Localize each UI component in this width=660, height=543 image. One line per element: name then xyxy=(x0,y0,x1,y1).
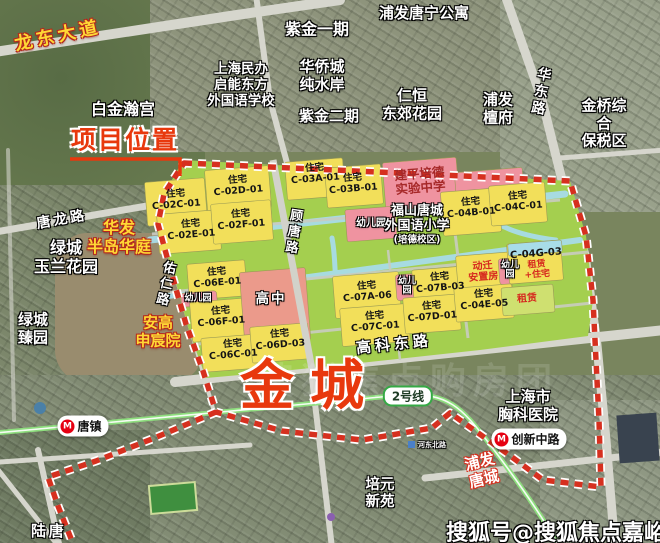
project-location-label: 项目位置 xyxy=(71,125,179,155)
jianping-school-label: 建平培德 实验中学 xyxy=(394,165,446,197)
relocation-label: 动迁 安置房 xyxy=(467,260,499,285)
parcel-label-c06e: 住宅 C-06E-01 xyxy=(192,266,242,291)
angao-shenchen-label: 安高 申宸院 xyxy=(135,314,180,349)
parcel-label-c07c: 住宅 C-07C-01 xyxy=(350,309,400,334)
parcel-label-c02f: 住宅 C-02F-01 xyxy=(216,208,265,233)
kindergarten-label-2: 幼儿园 xyxy=(184,294,211,305)
pufa-tanfu-label: 浦发 檀府 xyxy=(483,91,513,126)
sports-field xyxy=(149,482,197,514)
renheng-dongjiao-label: 仁恒 东郊花园 xyxy=(382,87,442,122)
lvcheng-yulan-label: 绿城 玉兰花园 xyxy=(34,239,98,277)
parcel-label-c02d: 住宅 C-02D-01 xyxy=(212,173,263,198)
parcel-label-c02c: 住宅 C-02C-01 xyxy=(151,187,201,212)
bonded-zone-road xyxy=(560,150,660,158)
kindergarten-label-1: 幼儿园 xyxy=(356,218,386,230)
tangzhen-station-label: 唐镇 xyxy=(77,418,101,435)
fushan-school-label: 福山唐城 外国语小学 xyxy=(384,204,449,235)
project-pointer-line xyxy=(70,159,180,176)
sohu-watermark: 搜狐号@搜狐焦点嘉峪关站 xyxy=(446,515,660,543)
kindergarten-label-4: 幼儿 园 xyxy=(501,262,519,281)
tang-partial-road-label: 唐陆 xyxy=(28,523,63,541)
fushan-campus-label: (培德校区) xyxy=(394,234,441,245)
project-name-label: 金城 xyxy=(240,354,380,418)
parcel-label-c06f: 住宅 C-06F-01 xyxy=(196,305,245,330)
parcel-label-c03b: 住宅 C-03B-01 xyxy=(328,171,378,196)
pond xyxy=(34,402,46,414)
jinqiao-bonded-label: 金桥综合 保税区 xyxy=(576,97,632,150)
parcel-label-c06d: 住宅 C-06D-03 xyxy=(254,327,305,352)
parcel-label-c02e: 住宅 C-02E-01 xyxy=(166,218,216,243)
hedong-poi-icon xyxy=(408,441,415,448)
lvcheng-zhenyuan-label: 绿城 臻园 xyxy=(18,311,48,346)
satellite-map: 龙东大道 白金瀚宫 项目位置 上海民办 启能东方 外国语学校 华侨城 纯水岸 紫… xyxy=(0,0,660,543)
tangzhen-station: M 唐镇 xyxy=(57,416,108,437)
qineng-school-label: 上海民办 启能东方 外国语学校 xyxy=(207,62,275,110)
purple-poi-icon xyxy=(327,513,335,521)
parcel-label-c04b: 住宅 C-04B-01 xyxy=(446,195,496,220)
huaqiaocheng-label: 华侨城 纯水岸 xyxy=(299,58,344,93)
high-school-label: 高中 xyxy=(256,292,287,308)
peiyuan-xinyuan-label: 培元 新苑 xyxy=(366,477,395,511)
parcel-label-c07a: 住宅 C-07A-06 xyxy=(342,279,392,304)
zijin-phase1-label: 紫金一期 xyxy=(285,21,349,40)
parcel-label-c07b: 住宅 C-07B-03 xyxy=(415,270,465,295)
shanghai-metro-logo-icon: M xyxy=(494,432,508,446)
zijin-phase2-label: 紫金二期 xyxy=(299,108,359,126)
baijin-hangong-label: 白金瀚宫 xyxy=(91,101,155,120)
chuangxin-station-label: 创新中路 xyxy=(511,431,559,448)
parcel-label-c04e: 住宅 C-04E-05 xyxy=(459,288,509,313)
parcel-label-c07d: 住宅 C-07D-01 xyxy=(406,299,457,324)
shanghai-metro-logo-icon: M xyxy=(60,419,74,433)
hedong-north-road-label: 河东北路 xyxy=(418,441,446,449)
parcel-label-c04c: 住宅 C-04C-01 xyxy=(493,189,543,214)
dark-building xyxy=(616,413,659,464)
west-edge-road xyxy=(8,150,14,420)
line2-badge: 2号线 xyxy=(383,386,433,407)
rental-mixed-label: 租赁 +住宅 xyxy=(523,259,550,281)
chuangxin-station: M 创新中路 xyxy=(491,429,566,450)
kindergarten-label-3: 幼儿 园 xyxy=(398,278,416,297)
rental-label: 租赁 xyxy=(517,293,538,306)
chest-hospital-label: 上海市 胸科医院 xyxy=(498,388,558,423)
pufa-tangning-label: 浦发唐宁公寓 xyxy=(379,5,469,23)
